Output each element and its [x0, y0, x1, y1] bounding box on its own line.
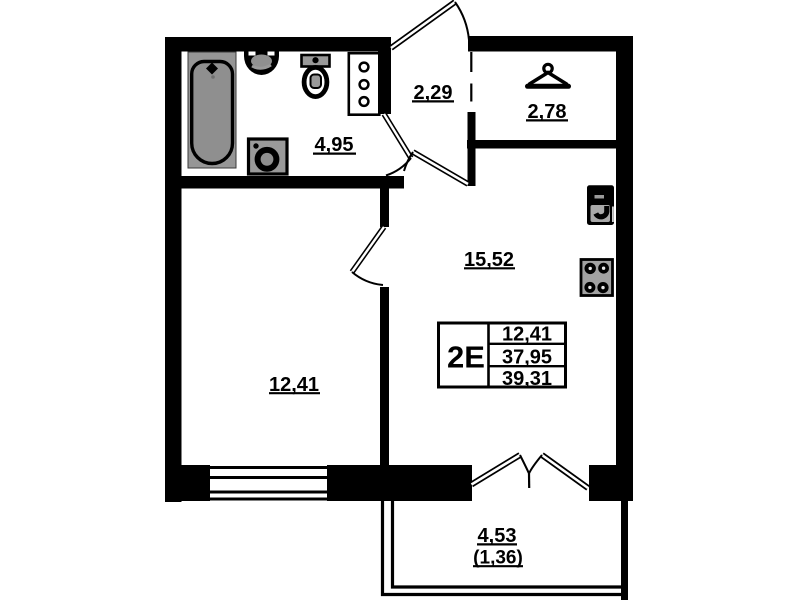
svg-text:37,95: 37,95 — [502, 347, 552, 369]
svg-text:39,31: 39,31 — [502, 368, 552, 390]
svg-text:2E: 2E — [447, 340, 485, 375]
svg-text:12,41: 12,41 — [502, 324, 552, 346]
